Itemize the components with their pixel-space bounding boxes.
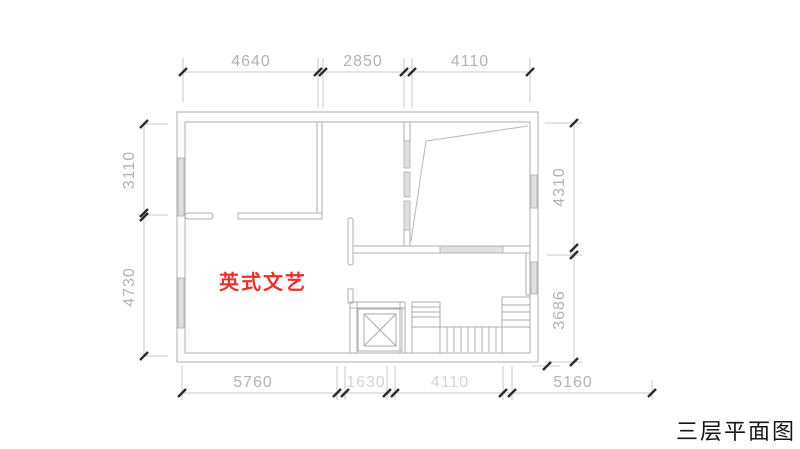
room-style-label: 英式文艺: [219, 266, 307, 295]
sloped-wall-lines: [411, 126, 528, 241]
elevator-shaft: [350, 302, 405, 353]
window-openings: [178, 141, 537, 328]
dim-right-2: 3686: [551, 290, 568, 330]
dim-top-3: 4110: [451, 53, 489, 70]
dim-right-1: 4310: [551, 167, 568, 207]
staircase: [412, 297, 530, 353]
dim-bottom-2: 1630: [346, 374, 386, 391]
dim-left-1: 3110: [121, 151, 138, 189]
dim-top-2: 2850: [343, 53, 383, 70]
floor-plan-page: 4640 2850 4110 3110 4730 4310 3686 5760 …: [0, 0, 800, 449]
floor-plan-drawing: 4640 2850 4110 3110 4730 4310 3686 5760 …: [0, 0, 800, 449]
dim-top-1: 4640: [231, 53, 271, 70]
dim-bottom-1: 5760: [233, 374, 273, 391]
dim-bottom-4: 5160: [553, 374, 593, 391]
dim-bottom-3: 4110: [431, 374, 469, 391]
dim-left-2: 4730: [121, 267, 138, 307]
plan-title: 三层平面图: [676, 414, 796, 446]
dimension-lines: [138, 58, 652, 400]
dimension-ticks: [140, 68, 656, 397]
